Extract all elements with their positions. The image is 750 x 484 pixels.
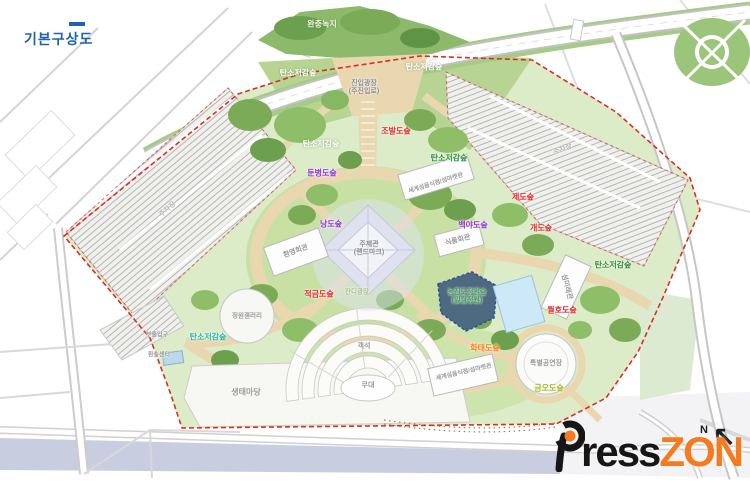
page-title: 기본구상도	[24, 22, 93, 49]
page-title-text: 기본구상도	[24, 31, 93, 47]
presszon-logo: ressZON	[551, 420, 742, 472]
interchange	[674, 18, 750, 86]
theme-pavilion-building	[312, 199, 424, 311]
title-dash-icon	[69, 22, 85, 26]
logo-text-press: ress	[581, 432, 659, 472]
logo-text-zon: ZON	[659, 432, 742, 472]
presszon-p-icon	[551, 420, 585, 472]
master-plan-map: 기본구상도 완충녹지진입광장 (주진입로)탄소저감숲탄소저감숲탄소저감숲조발도숲…	[0, 0, 750, 484]
stage	[341, 375, 395, 401]
map-canvas	[0, 0, 750, 484]
